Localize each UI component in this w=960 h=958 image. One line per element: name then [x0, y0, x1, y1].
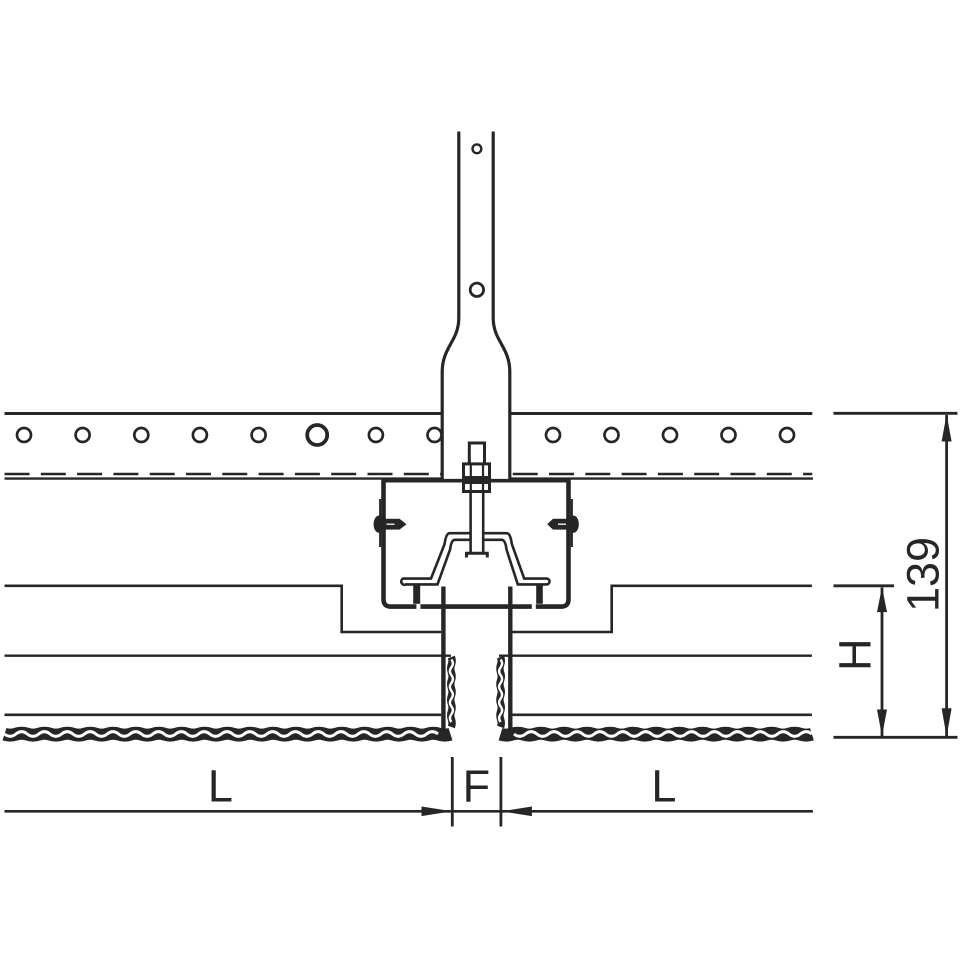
svg-text:F: F [463, 761, 491, 812]
svg-text:H: H [830, 639, 881, 672]
svg-text:139: 139 [898, 537, 949, 612]
svg-text:L: L [208, 761, 233, 812]
svg-text:L: L [651, 761, 676, 812]
